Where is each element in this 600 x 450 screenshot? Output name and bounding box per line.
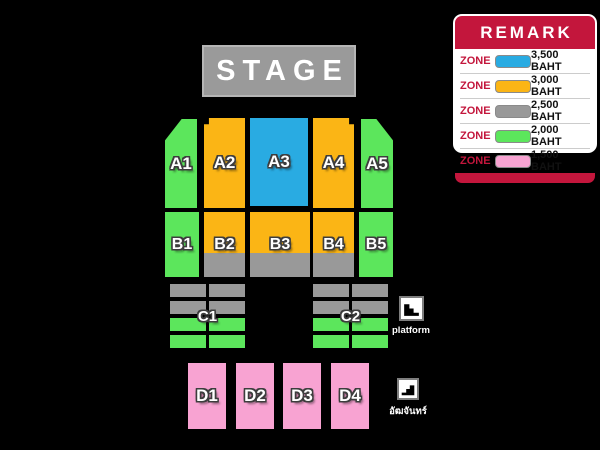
legend-zone-label: ZONE [460, 105, 493, 117]
legend-row: ZONE 3,000 BAHT [460, 74, 590, 99]
zone-a4-label: A4 [323, 153, 345, 173]
legend-row: ZONE 2,500 BAHT [460, 99, 590, 124]
zone-d1-label: D1 [196, 386, 218, 406]
zone-a5[interactable]: A5 [361, 119, 393, 208]
zone-a3-label: A3 [268, 152, 290, 172]
seating-chart: STAGE A1 A2 A3 A4 A5 B1 B2 B3 B4 B5 [0, 0, 600, 450]
zone-a2[interactable]: A2 [204, 118, 245, 208]
zone-d4-label: D4 [339, 386, 361, 406]
legend-zone-label: ZONE [460, 80, 493, 92]
legend-footer [455, 173, 595, 183]
legend-price: 2,500 BAHT [531, 99, 590, 123]
stage: STAGE [202, 45, 356, 97]
stage-label: STAGE [209, 55, 349, 88]
stairs-descending-left-icon [397, 378, 419, 400]
zone-d1[interactable]: D1 [188, 363, 226, 429]
zone-d2[interactable]: D2 [236, 363, 274, 429]
zone-a1[interactable]: A1 [165, 119, 197, 208]
legend-row: ZONE 3,500 BAHT [460, 49, 590, 74]
legend-zone-label: ZONE [460, 155, 493, 167]
platform-label: platform [392, 325, 430, 336]
zone-b4[interactable]: B4 [313, 212, 354, 277]
zone-b3-label: B3 [270, 236, 290, 254]
zone-d2-label: D2 [244, 386, 266, 406]
zone-a2-label: A2 [214, 153, 236, 173]
zone-color-swatch [495, 130, 531, 143]
legend-price: 3,500 BAHT [531, 49, 590, 73]
legend-header: REMARK [455, 16, 595, 49]
zone-color-swatch [495, 155, 531, 168]
zone-b2-label: B2 [214, 236, 234, 254]
legend-zone-label: ZONE [460, 130, 493, 142]
legend-title: REMARK [477, 23, 573, 43]
legend-price: 3,000 BAHT [531, 74, 590, 98]
zone-d4[interactable]: D4 [331, 363, 369, 429]
zone-a4[interactable]: A4 [313, 118, 354, 208]
zone-b4-label: B4 [323, 236, 343, 254]
zone-c2[interactable]: C2 [313, 284, 388, 348]
zone-c1[interactable]: C1 [170, 284, 245, 348]
platform-marker: platform [387, 296, 435, 336]
zone-a3[interactable]: A3 [250, 118, 308, 206]
legend-zone-label: ZONE [460, 55, 493, 67]
stairs-descending-right-icon [399, 296, 424, 321]
legend-row: ZONE 2,000 BAHT [460, 124, 590, 149]
grandstand-marker: อัฒจันทร์ [381, 378, 435, 419]
legend-row: ZONE 1,500 BAHT [460, 149, 590, 173]
zone-b5-label: B5 [366, 236, 386, 254]
zone-b3-lower-tier [250, 253, 310, 277]
legend-price: 2,000 BAHT [531, 124, 590, 148]
zone-b3[interactable]: B3 [250, 212, 310, 277]
zone-c2-label: C2 [313, 284, 388, 348]
zone-d3-label: D3 [291, 386, 313, 406]
zone-a5-label: A5 [366, 154, 388, 174]
zone-b1-label: B1 [172, 236, 192, 254]
zone-color-swatch [495, 55, 531, 68]
legend-rows: ZONE 3,500 BAHT ZONE 3,000 BAHT ZONE 2,5… [455, 49, 595, 173]
legend-panel: REMARK ZONE 3,500 BAHT ZONE 3,000 BAHT Z… [453, 14, 597, 153]
zone-b2-lower-tier [204, 253, 245, 277]
zone-b5[interactable]: B5 [359, 212, 393, 277]
zone-color-swatch [495, 80, 531, 93]
zone-c1-label: C1 [170, 284, 245, 348]
zone-a1-label: A1 [170, 154, 192, 174]
zone-b2[interactable]: B2 [204, 212, 245, 277]
zone-b1[interactable]: B1 [165, 212, 199, 277]
zone-color-swatch [495, 105, 531, 118]
legend-price: 1,500 BAHT [531, 149, 590, 173]
grandstand-label: อัฒจันทร์ [389, 404, 427, 419]
zone-b4-lower-tier [313, 253, 354, 277]
zone-d3[interactable]: D3 [283, 363, 321, 429]
